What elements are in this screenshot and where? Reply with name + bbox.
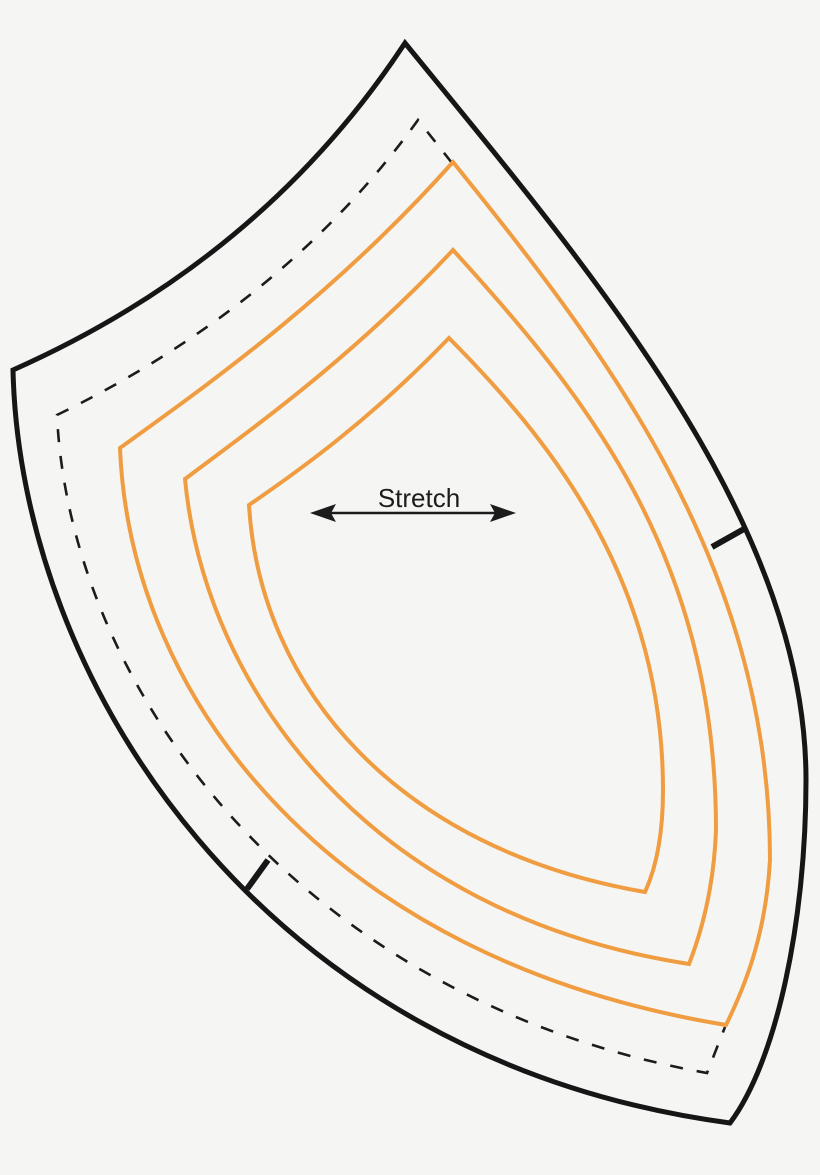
pattern-canvas: Stretch [0, 0, 820, 1175]
sewing-pattern-diagram: Stretch [0, 0, 820, 1175]
background [0, 0, 820, 1175]
stretch-label: Stretch [378, 483, 460, 513]
